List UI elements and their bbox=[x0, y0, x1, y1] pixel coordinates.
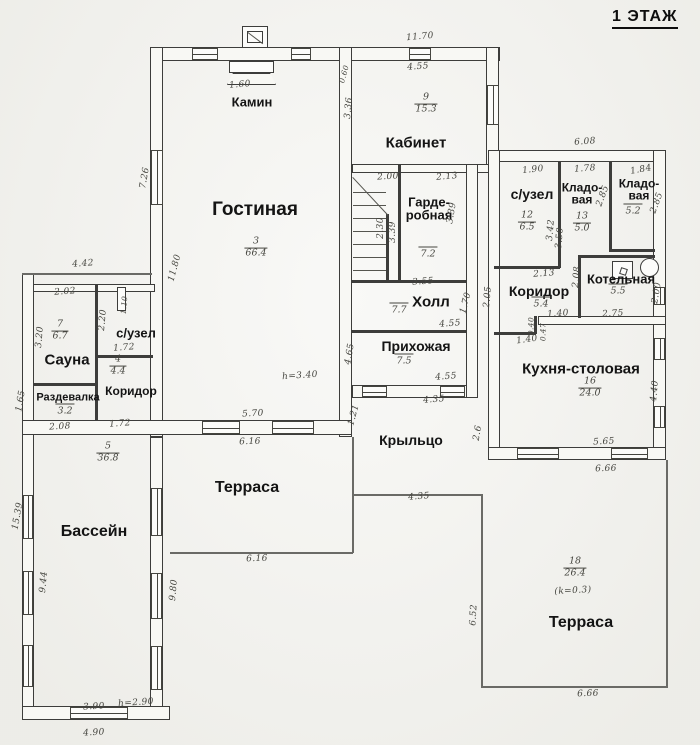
partition bbox=[558, 162, 561, 268]
dimension-label: 5.65 bbox=[593, 436, 615, 447]
window bbox=[151, 150, 163, 205]
dimension-label: 3.50 bbox=[554, 227, 566, 249]
wall bbox=[494, 150, 666, 162]
dimension-label: (k=0.3) bbox=[554, 585, 592, 597]
dimension-label: 9.80 bbox=[168, 579, 180, 601]
room-label: Кухня-столовая bbox=[522, 361, 640, 376]
dimension-label: 1.10 bbox=[119, 295, 130, 314]
dimension-label: 2.02 bbox=[54, 286, 76, 297]
window bbox=[487, 85, 499, 125]
dimension-label: 1.84 bbox=[629, 163, 652, 177]
room-number-area: 1826.4 bbox=[563, 557, 586, 580]
room-label: с/узел bbox=[116, 326, 156, 339]
partition bbox=[609, 249, 655, 252]
window bbox=[362, 386, 387, 397]
room-area: 5.4 bbox=[531, 297, 550, 310]
dimension-label: 1.72 bbox=[109, 418, 131, 429]
dimension-label: 5.70 bbox=[242, 408, 264, 419]
dimension-label: 2.05 bbox=[482, 286, 494, 308]
dimension-label: 1.90 bbox=[522, 164, 545, 176]
room-label: Крыльцо bbox=[379, 433, 443, 447]
room-area: 7.2 bbox=[418, 247, 437, 260]
outline bbox=[22, 273, 152, 275]
window bbox=[151, 573, 162, 619]
dimension-label: 6.16 bbox=[239, 437, 261, 448]
dimension-label: 2.13 bbox=[436, 171, 458, 183]
dimension-label: 1.78 bbox=[574, 163, 596, 174]
fireplace-icon bbox=[229, 61, 274, 73]
dimension-label: 2.75 bbox=[602, 308, 624, 319]
dimension-label: 4.90 bbox=[83, 727, 105, 738]
partition bbox=[33, 383, 95, 386]
room-label: Коридор bbox=[105, 385, 157, 397]
room-area: 5.2 bbox=[623, 204, 642, 217]
window bbox=[151, 646, 162, 690]
room-label: Бассейн bbox=[61, 524, 128, 540]
dimension-label: 2.6 bbox=[472, 424, 485, 441]
partition bbox=[609, 162, 612, 251]
dimension-label: 0.40 bbox=[527, 317, 536, 335]
room-number-area: 44.4 bbox=[109, 355, 126, 378]
dimension-label: 3.55 bbox=[412, 276, 434, 287]
dimension-label: 3.39 bbox=[388, 221, 398, 243]
room-area: 7.7 bbox=[389, 303, 408, 316]
dimension-label: 2.30 bbox=[376, 217, 386, 239]
window bbox=[23, 571, 33, 615]
room-label: Терраса bbox=[549, 615, 613, 631]
dimension-label: 4.40 bbox=[649, 380, 661, 402]
window bbox=[23, 495, 33, 539]
dimension-label: 1.72 bbox=[113, 342, 135, 353]
room-area: 5.5 bbox=[608, 284, 627, 297]
room-label: Сауна bbox=[44, 352, 89, 367]
dimension-label: 1.40 bbox=[547, 308, 569, 319]
dimension-label: 3.20 bbox=[34, 326, 46, 348]
terrace-edge bbox=[481, 494, 483, 688]
room-number-area: 76.7 bbox=[51, 320, 68, 343]
dimension-label: 3.90 bbox=[83, 701, 105, 712]
window bbox=[151, 488, 162, 536]
dimension-label: 1.60 bbox=[229, 79, 251, 91]
terrace-edge bbox=[481, 686, 668, 688]
window bbox=[272, 421, 314, 434]
chimney-flue bbox=[247, 31, 263, 43]
window bbox=[291, 48, 311, 60]
room-label: с/узел bbox=[511, 187, 554, 201]
window bbox=[654, 338, 665, 360]
wall bbox=[33, 284, 155, 292]
wall bbox=[466, 164, 478, 398]
dimension-label: 6.08 bbox=[574, 136, 596, 147]
dimension-label: 6.16 bbox=[246, 554, 268, 565]
window bbox=[517, 448, 559, 459]
dimension-label: 6.66 bbox=[577, 689, 599, 700]
room-number-area: 1624.0 bbox=[578, 377, 601, 400]
dimension-label: 2.00 bbox=[377, 171, 399, 182]
room-area: 7.5 bbox=[394, 354, 413, 367]
room-label: Кабинет bbox=[386, 135, 447, 150]
room-label: Прихожая bbox=[381, 339, 450, 353]
room-number-area: 915.3 bbox=[414, 93, 437, 116]
room-number-area: 536.8 bbox=[96, 442, 119, 465]
terrace-edge bbox=[666, 460, 668, 688]
room-area: 3.2 bbox=[55, 404, 74, 417]
dimension-label: 4.55 bbox=[439, 318, 461, 329]
dimension-label: 3.36 bbox=[343, 97, 355, 119]
dimension-label: 4.35 bbox=[423, 394, 445, 406]
window bbox=[409, 48, 431, 60]
room-number-area: 366.4 bbox=[244, 237, 267, 260]
partition bbox=[352, 280, 466, 283]
floor-plan: 1 ЭТАЖ bbox=[0, 0, 700, 745]
room-label: Холл bbox=[412, 294, 450, 309]
page-title: 1 ЭТАЖ bbox=[612, 8, 678, 29]
window bbox=[654, 406, 665, 428]
room-label: Раздевалка bbox=[36, 392, 99, 403]
room-label: Терраса bbox=[215, 480, 279, 496]
dimension-label: 2.08 bbox=[49, 421, 71, 432]
dimension-label: 4.65 bbox=[343, 342, 357, 365]
window bbox=[23, 645, 33, 687]
room-number-area: 135.0 bbox=[573, 212, 591, 235]
dimension-label: 9.44 bbox=[38, 571, 50, 593]
dimension-label: 1.40 bbox=[516, 334, 539, 347]
room-label: Камин bbox=[232, 95, 273, 108]
dimension-label: 4.55 bbox=[435, 371, 457, 382]
dimension-label: 6.52 bbox=[468, 604, 479, 626]
dimension-label: 11.70 bbox=[406, 31, 435, 43]
partition bbox=[352, 330, 466, 333]
dimension-label: 2.13 bbox=[533, 268, 555, 279]
dimension-label: 4.42 bbox=[72, 258, 94, 269]
dimension-label: 11.80 bbox=[167, 253, 184, 282]
dimension-label: 4.55 bbox=[407, 61, 429, 72]
dimension-label: 6.66 bbox=[595, 464, 617, 475]
dimension-label: 3.39 bbox=[445, 201, 459, 224]
dimension-label: h=3.40 bbox=[282, 370, 318, 382]
window bbox=[611, 448, 648, 459]
dimension-label: 4.35 bbox=[408, 491, 430, 503]
wall bbox=[150, 47, 163, 437]
window bbox=[202, 421, 240, 434]
partition bbox=[578, 255, 655, 258]
window bbox=[192, 48, 218, 60]
dimension-label: 2.08 bbox=[571, 266, 583, 288]
room-number-area: 126.5 bbox=[518, 211, 536, 234]
dimension-label: 2.20 bbox=[97, 309, 109, 331]
dimension-label: 0.47 bbox=[539, 323, 548, 341]
room-label: Гостиная bbox=[212, 200, 298, 220]
